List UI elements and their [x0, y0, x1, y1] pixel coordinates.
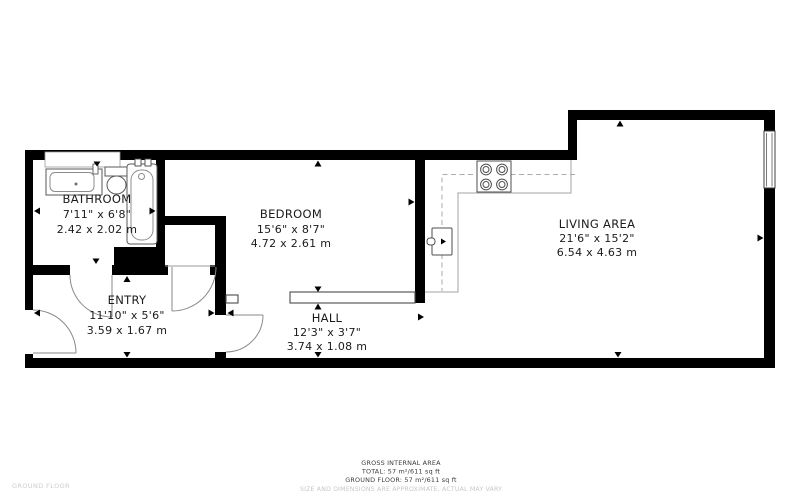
- room-label-entry: ENTRY 11'10" x 5'6" 3.59 x 1.67 m: [87, 293, 168, 337]
- footer: GROSS INTERNAL AREA TOTAL: 57 m²/611 sq …: [12, 459, 502, 493]
- wall-right-lower: [764, 188, 775, 368]
- wall-hall-door-stub: [215, 352, 226, 364]
- wall-entry-top-a: [33, 265, 70, 275]
- room-dim-metric: 6.54 x 4.63 m: [557, 246, 638, 259]
- room-name: LIVING AREA: [559, 217, 636, 231]
- gross-internal-area-label: GROSS INTERNAL AREA: [361, 459, 441, 467]
- dimension-arrow-icon: [418, 314, 424, 321]
- room-name: HALL: [312, 311, 343, 325]
- room-dim-imperial: 7'11" x 6'8": [63, 208, 131, 221]
- stove: [477, 161, 511, 192]
- bathtub-drain: [139, 174, 145, 180]
- sink-drain: [75, 183, 78, 186]
- kitchen-appliance: [427, 228, 452, 255]
- wall-bottom: [25, 358, 775, 368]
- hall-partition: [290, 292, 415, 303]
- dimension-arrow-icon: [124, 276, 131, 282]
- total-area-value: TOTAL: 57 m²/611 sq ft: [361, 468, 441, 476]
- toilet: [105, 167, 128, 194]
- wall-bedroom-right: [415, 150, 425, 303]
- room-dim-imperial: 11'10" x 5'6": [89, 309, 165, 322]
- room-label-hall: HALL 12'3" x 3'7" 3.74 x 1.08 m: [287, 311, 368, 353]
- room-name: ENTRY: [108, 293, 147, 307]
- room-dim-metric: 3.59 x 1.67 m: [87, 324, 168, 337]
- dimension-arrow-icon: [615, 352, 622, 358]
- wall-right-upper: [764, 110, 775, 131]
- dimension-arrow-icon: [758, 235, 764, 242]
- hall-partition-small: [226, 295, 238, 303]
- dimension-arrow-icon: [34, 208, 40, 215]
- partitions: [165, 266, 415, 303]
- dimension-arrow-icon: [315, 161, 322, 167]
- wall-top-right-section: [568, 110, 775, 120]
- floor-name-label: GROUND FLOOR: [12, 482, 70, 490]
- room-dim-imperial: 21'6" x 15'2": [559, 232, 635, 245]
- dimension-arrow-icon: [315, 304, 322, 310]
- room-dim-imperial: 12'3" x 3'7": [293, 326, 361, 339]
- room-label-bedroom: BEDROOM 15'6" x 8'7" 4.72 x 2.61 m: [251, 207, 332, 250]
- appliance-handle: [427, 238, 435, 245]
- room-label-bathroom: BATHROOM 7'11" x 6'8" 2.42 x 2.02 m: [57, 192, 138, 236]
- room-dim-metric: 4.72 x 2.61 m: [251, 237, 332, 250]
- dimension-arrow-icon: [409, 199, 415, 206]
- dimension-arrow-icon: [93, 259, 100, 265]
- ground-floor-area-value: GROUND FLOOR: 57 m²/611 sq ft: [345, 476, 457, 484]
- floor-plan-canvas: BATHROOM 7'11" x 6'8" 2.42 x 2.02 m ENTR…: [0, 0, 800, 500]
- bathtub-tap: [135, 159, 141, 166]
- floor-plan-page: BATHROOM 7'11" x 6'8" 2.42 x 2.02 m ENTR…: [0, 0, 800, 500]
- room-label-living: LIVING AREA 21'6" x 15'2" 6.54 x 4.63 m: [557, 217, 638, 259]
- wall-entry-top-b: [112, 265, 168, 275]
- room-name: BATHROOM: [63, 192, 132, 206]
- hall-door: [226, 315, 263, 352]
- disclaimer-text: SIZE AND DIMENSIONS ARE APPROXIMATE, ACT…: [300, 486, 502, 493]
- living-window: [764, 131, 775, 188]
- room-dim-metric: 3.74 x 1.08 m: [287, 340, 368, 353]
- closet-door: [172, 267, 216, 311]
- front-door: [33, 310, 76, 353]
- room-name: BEDROOM: [260, 207, 322, 221]
- room-dim-metric: 2.42 x 2.02 m: [57, 223, 138, 236]
- bathroom-recess: [45, 152, 120, 167]
- dimension-arrow-icon: [617, 121, 624, 127]
- bathtub-tap: [145, 159, 151, 166]
- kitchen: [425, 160, 575, 292]
- dimension-arrow-icon: [209, 310, 215, 317]
- wall-under-bathtub: [114, 247, 165, 267]
- sink: [46, 164, 102, 195]
- room-dim-imperial: 15'6" x 8'7": [257, 223, 325, 236]
- front-door-opening: [24, 310, 34, 354]
- dimension-arrow-icon: [315, 287, 322, 293]
- dimension-arrow-icon: [124, 352, 131, 358]
